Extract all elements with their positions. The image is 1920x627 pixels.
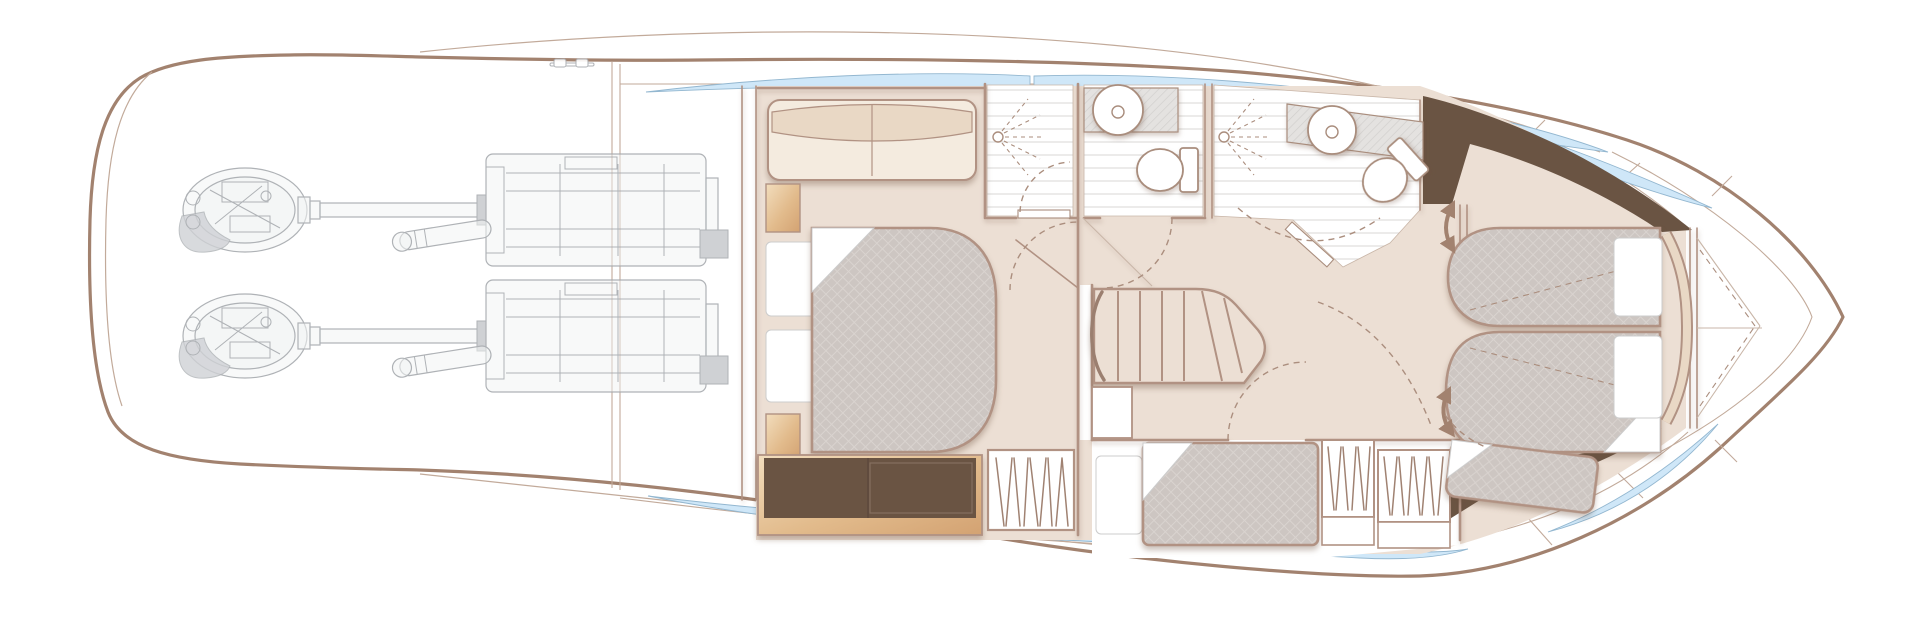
pillow-icon — [766, 330, 818, 402]
pillow-icon — [766, 242, 818, 316]
under-stair-locker — [1092, 387, 1132, 438]
pillow-icon — [1096, 456, 1142, 534]
dresser-icon — [758, 455, 982, 535]
pillow-icon — [1614, 238, 1662, 316]
sofa-icon — [768, 100, 976, 180]
aft-double-berth — [812, 228, 996, 452]
bench-berth-icon — [1143, 443, 1318, 545]
sink-icon — [1093, 85, 1143, 135]
aft-shower-floor — [987, 85, 1073, 216]
pillow-icon — [1614, 336, 1662, 418]
stair-wall-cavity — [1080, 285, 1092, 440]
nightstand-icon — [766, 414, 800, 460]
hanging-locker-icon — [988, 450, 1074, 530]
hanging-locker-icon — [1322, 440, 1374, 545]
toilet-icon — [1137, 148, 1198, 192]
nightstand-icon — [766, 184, 800, 232]
floor-plan-canvas — [0, 0, 1920, 627]
sink-icon — [1308, 106, 1356, 154]
hanging-locker-icon — [1378, 450, 1450, 548]
yacht-floor-plan: Motor yacht lower-deck accommodation flo… — [0, 0, 1920, 627]
shower-door — [1018, 210, 1070, 218]
